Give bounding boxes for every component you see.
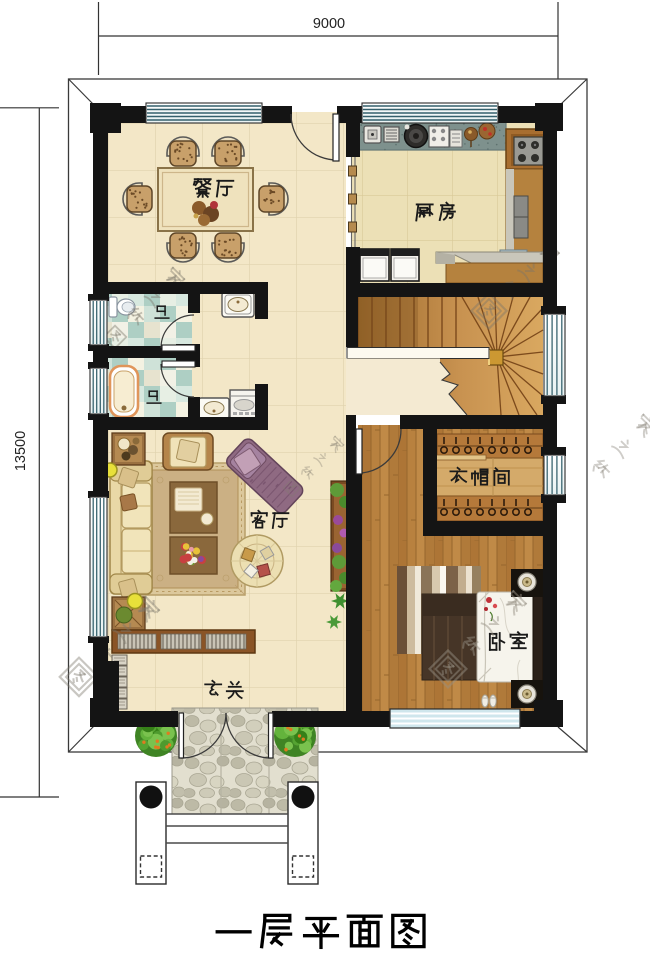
svg-text:13500: 13500 (13, 431, 29, 471)
svg-text:9000: 9000 (313, 16, 345, 32)
